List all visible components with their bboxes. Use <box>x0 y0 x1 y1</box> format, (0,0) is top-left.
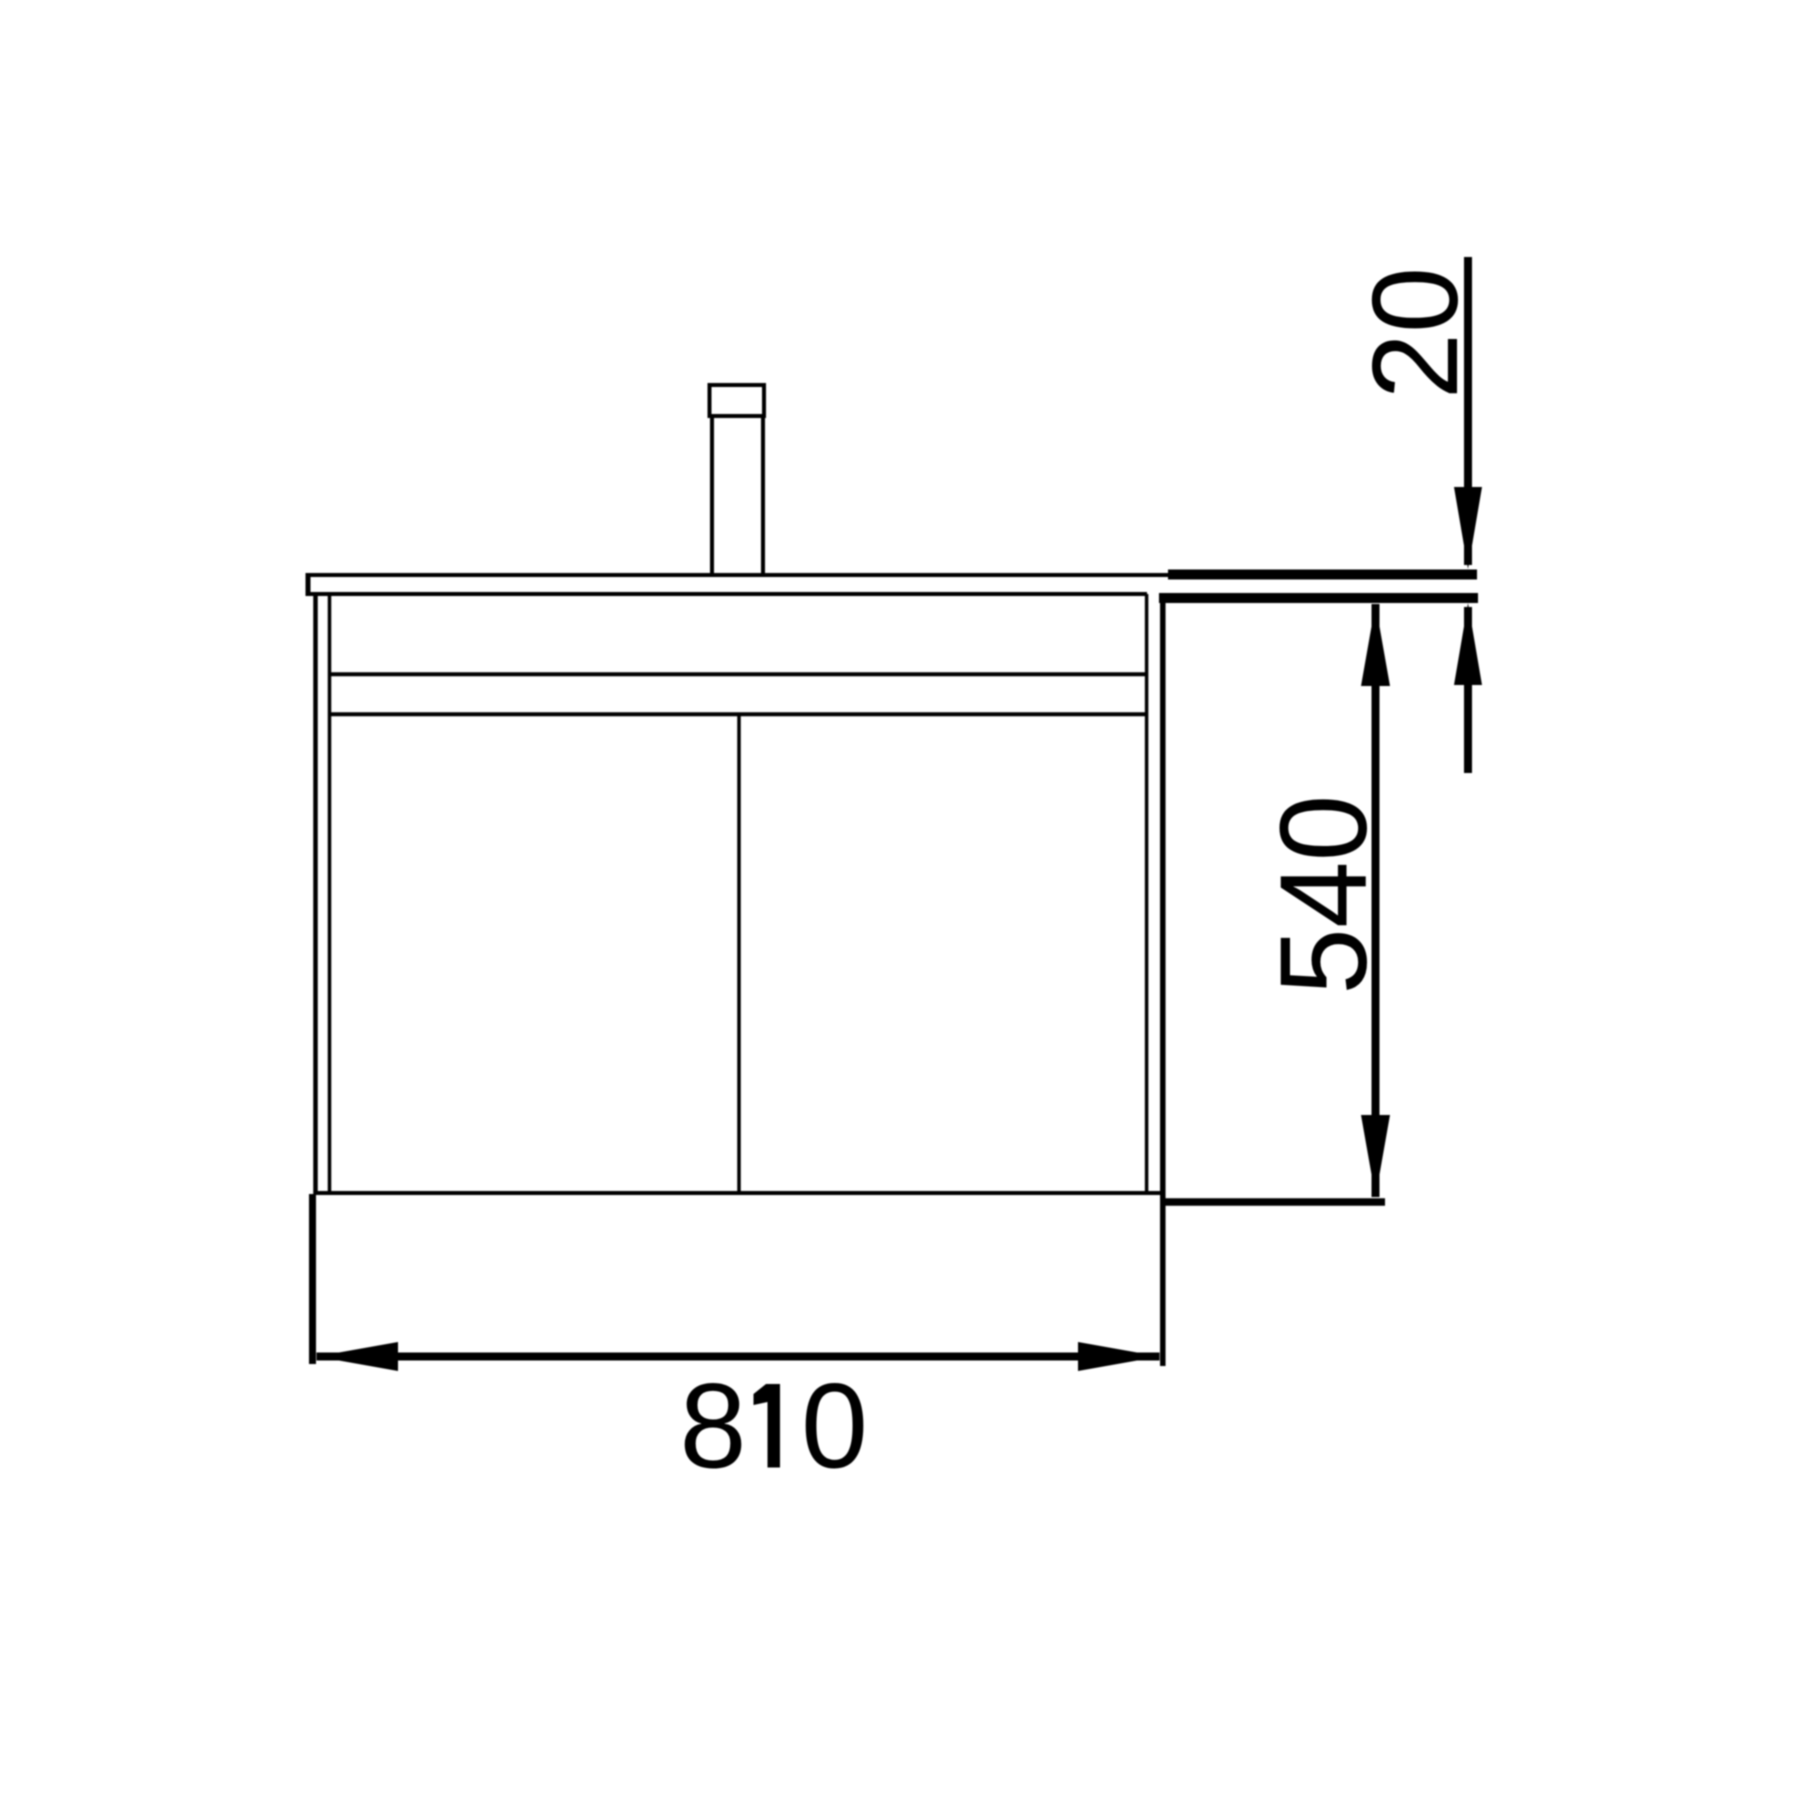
svg-text:540: 540 <box>1256 795 1393 995</box>
svg-text:8: 8 <box>680 1359 747 1494</box>
svg-text:0: 0 <box>801 1359 868 1494</box>
svg-text:20: 20 <box>1347 267 1483 399</box>
